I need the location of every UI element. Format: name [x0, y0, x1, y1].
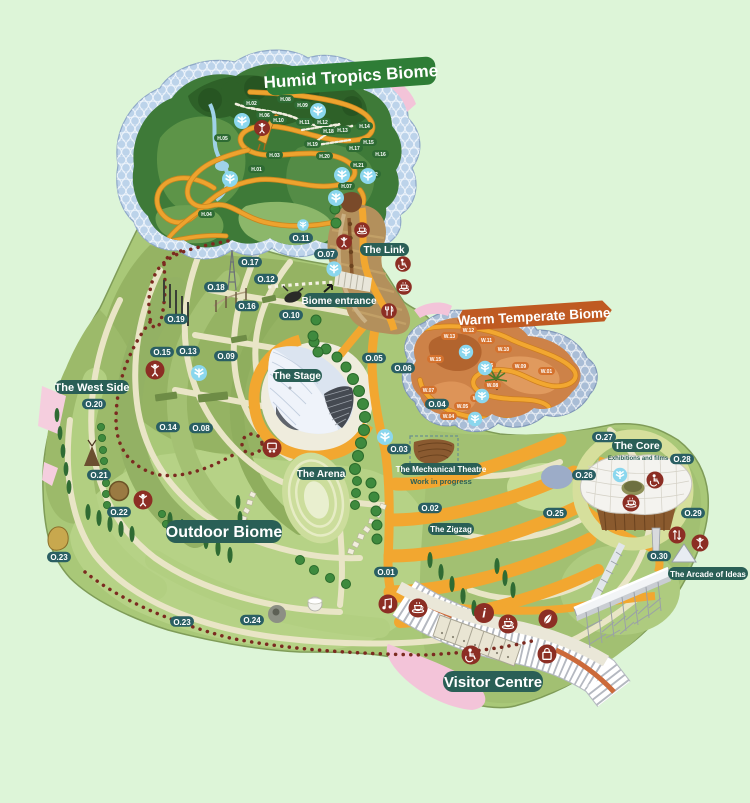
svg-text:H.03: H.03 — [269, 153, 280, 159]
svg-text:O.02: O.02 — [421, 504, 439, 513]
svg-text:The Arena: The Arena — [297, 469, 346, 480]
svg-text:H.17: H.17 — [349, 146, 360, 152]
svg-text:W.11: W.11 — [481, 338, 492, 344]
svg-text:O.23: O.23 — [50, 553, 68, 562]
svg-text:H.21: H.21 — [353, 163, 364, 169]
svg-text:H.12: H.12 — [317, 120, 328, 126]
svg-text:Work in progress: Work in progress — [410, 477, 472, 486]
svg-text:W.15: W.15 — [430, 357, 442, 363]
svg-text:O.20: O.20 — [85, 400, 103, 409]
svg-text:W.09: W.09 — [515, 364, 527, 370]
svg-text:O.19: O.19 — [167, 315, 185, 324]
svg-text:H.13: H.13 — [337, 128, 348, 134]
svg-text:H.15: H.15 — [363, 140, 374, 146]
svg-text:The Core: The Core — [614, 440, 660, 452]
svg-text:H.11: H.11 — [299, 120, 310, 126]
svg-text:O.17: O.17 — [241, 258, 259, 267]
svg-text:O.03: O.03 — [390, 445, 408, 454]
svg-text:O.23: O.23 — [173, 618, 191, 627]
svg-text:W.01: W.01 — [541, 369, 553, 375]
svg-text:O.10: O.10 — [282, 311, 300, 320]
svg-text:O.11: O.11 — [293, 234, 310, 243]
svg-text:O.05: O.05 — [365, 354, 383, 363]
svg-text:H.05: H.05 — [217, 136, 228, 142]
svg-text:H.18: H.18 — [323, 129, 334, 135]
svg-text:O.24: O.24 — [243, 616, 261, 625]
svg-text:O.27: O.27 — [595, 433, 613, 442]
svg-text:H.14: H.14 — [359, 124, 370, 130]
svg-text:O.22: O.22 — [110, 508, 128, 517]
svg-text:O.29: O.29 — [684, 509, 702, 518]
svg-text:O.01: O.01 — [377, 568, 395, 577]
svg-text:The Mechanical Theatre: The Mechanical Theatre — [396, 465, 487, 474]
svg-text:O.30: O.30 — [650, 552, 668, 561]
svg-text:O.13: O.13 — [179, 347, 197, 356]
svg-text:The West Side: The West Side — [55, 382, 130, 394]
svg-text:O.14: O.14 — [159, 423, 177, 432]
svg-text:O.25: O.25 — [546, 509, 564, 518]
svg-text:H.02: H.02 — [246, 101, 257, 107]
svg-text:Exhibitions and films: Exhibitions and films — [608, 456, 669, 462]
svg-text:H.09: H.09 — [297, 103, 308, 109]
svg-text:H.04: H.04 — [201, 212, 212, 218]
svg-text:The Zigzag: The Zigzag — [430, 525, 472, 534]
svg-text:W.08: W.08 — [487, 383, 499, 389]
svg-text:W.05: W.05 — [457, 404, 469, 410]
svg-text:O.21: O.21 — [90, 471, 108, 480]
svg-text:Biome entrance: Biome entrance — [301, 296, 376, 307]
svg-text:O.15: O.15 — [153, 348, 171, 357]
svg-text:O.28: O.28 — [673, 455, 691, 464]
svg-text:O.12: O.12 — [257, 275, 275, 284]
svg-text:W.10: W.10 — [498, 347, 510, 353]
svg-text:H.08: H.08 — [280, 97, 291, 103]
svg-text:H.06: H.06 — [259, 113, 270, 119]
svg-text:O.18: O.18 — [207, 283, 225, 292]
svg-text:O.16: O.16 — [238, 302, 256, 311]
svg-text:Visitor Centre: Visitor Centre — [444, 674, 542, 691]
svg-text:The Stage: The Stage — [273, 371, 321, 382]
svg-text:W.07: W.07 — [423, 388, 435, 394]
svg-text:W.13: W.13 — [444, 334, 456, 340]
svg-text:H.07: H.07 — [341, 184, 352, 190]
svg-text:H.16: H.16 — [375, 152, 386, 158]
svg-text:O.07: O.07 — [317, 250, 335, 259]
svg-text:O.04: O.04 — [428, 400, 446, 409]
svg-text:The Arcade of Ideas: The Arcade of Ideas — [670, 570, 746, 579]
svg-text:W.04: W.04 — [443, 414, 455, 420]
svg-text:O.08: O.08 — [192, 424, 210, 433]
svg-text:H.10: H.10 — [273, 118, 284, 124]
svg-text:O.06: O.06 — [394, 364, 412, 373]
svg-text:The Link: The Link — [363, 245, 405, 256]
svg-text:Outdoor Biome: Outdoor Biome — [166, 524, 283, 541]
svg-text:O.26: O.26 — [575, 471, 593, 480]
svg-text:W.12: W.12 — [463, 328, 475, 334]
svg-text:H.01: H.01 — [251, 167, 262, 173]
svg-text:H.19: H.19 — [307, 142, 318, 148]
svg-text:H.20: H.20 — [319, 154, 330, 160]
svg-text:O.09: O.09 — [217, 352, 235, 361]
